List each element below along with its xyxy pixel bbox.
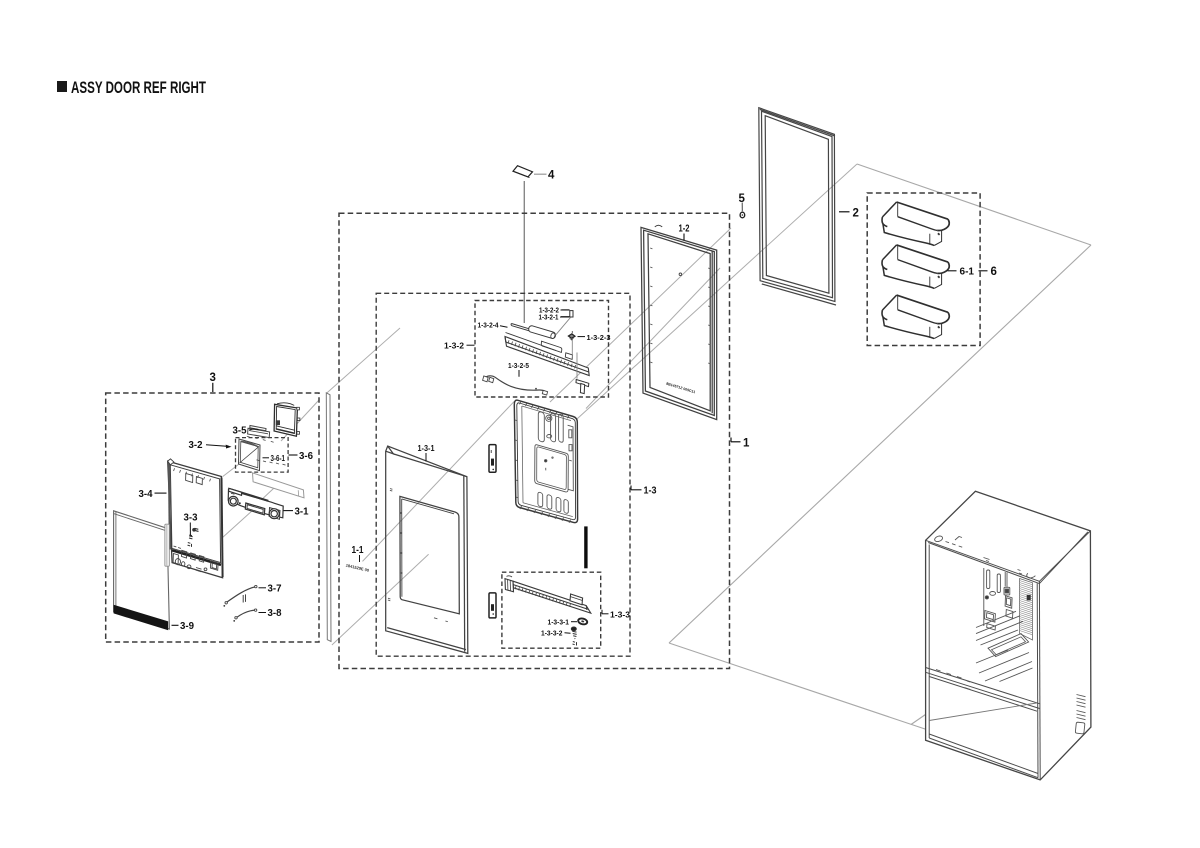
svg-text:1-1: 1-1 [352, 545, 364, 556]
svg-text:1-3-2-4: 1-3-2-4 [478, 323, 499, 330]
svg-text:1-3-2-1: 1-3-2-1 [539, 315, 559, 322]
svg-text:3-3: 3-3 [184, 513, 198, 524]
svg-text:3-2: 3-2 [189, 440, 203, 451]
svg-text:3-4: 3-4 [139, 489, 153, 500]
svg-text:1-3: 1-3 [644, 485, 657, 496]
svg-text:1-2: 1-2 [679, 223, 690, 234]
svg-text:1-3-3-2: 1-3-3-2 [541, 631, 563, 638]
svg-text:1: 1 [743, 437, 750, 449]
svg-text:3-6: 3-6 [299, 451, 313, 462]
svg-text:4: 4 [548, 170, 555, 182]
svg-text:1-3-2: 1-3-2 [444, 341, 464, 351]
svg-text:3-7: 3-7 [268, 583, 282, 594]
svg-text:ASSY DOOR REF RIGHT: ASSY DOOR REF RIGHT [71, 79, 206, 97]
svg-text:5: 5 [739, 193, 746, 205]
svg-text:1-3-3-1: 1-3-3-1 [548, 619, 570, 626]
svg-text:3: 3 [210, 372, 216, 384]
svg-text:3-1: 3-1 [295, 506, 309, 517]
svg-text:1-3-3: 1-3-3 [610, 609, 630, 619]
svg-text:3-8: 3-8 [268, 608, 282, 619]
svg-text:1-3-2-2: 1-3-2-2 [539, 307, 559, 314]
svg-text:1-3-1: 1-3-1 [418, 443, 435, 453]
svg-text:1-3-2-5: 1-3-2-5 [508, 363, 529, 370]
svg-text:6: 6 [991, 266, 997, 278]
svg-text:1-3-2-3: 1-3-2-3 [587, 335, 611, 342]
svg-text:3-9: 3-9 [180, 621, 194, 632]
svg-text:6-1: 6-1 [960, 267, 975, 278]
svg-text:2: 2 [853, 208, 859, 220]
svg-text:3-5: 3-5 [233, 425, 247, 436]
svg-text:3-6-1: 3-6-1 [271, 453, 286, 463]
